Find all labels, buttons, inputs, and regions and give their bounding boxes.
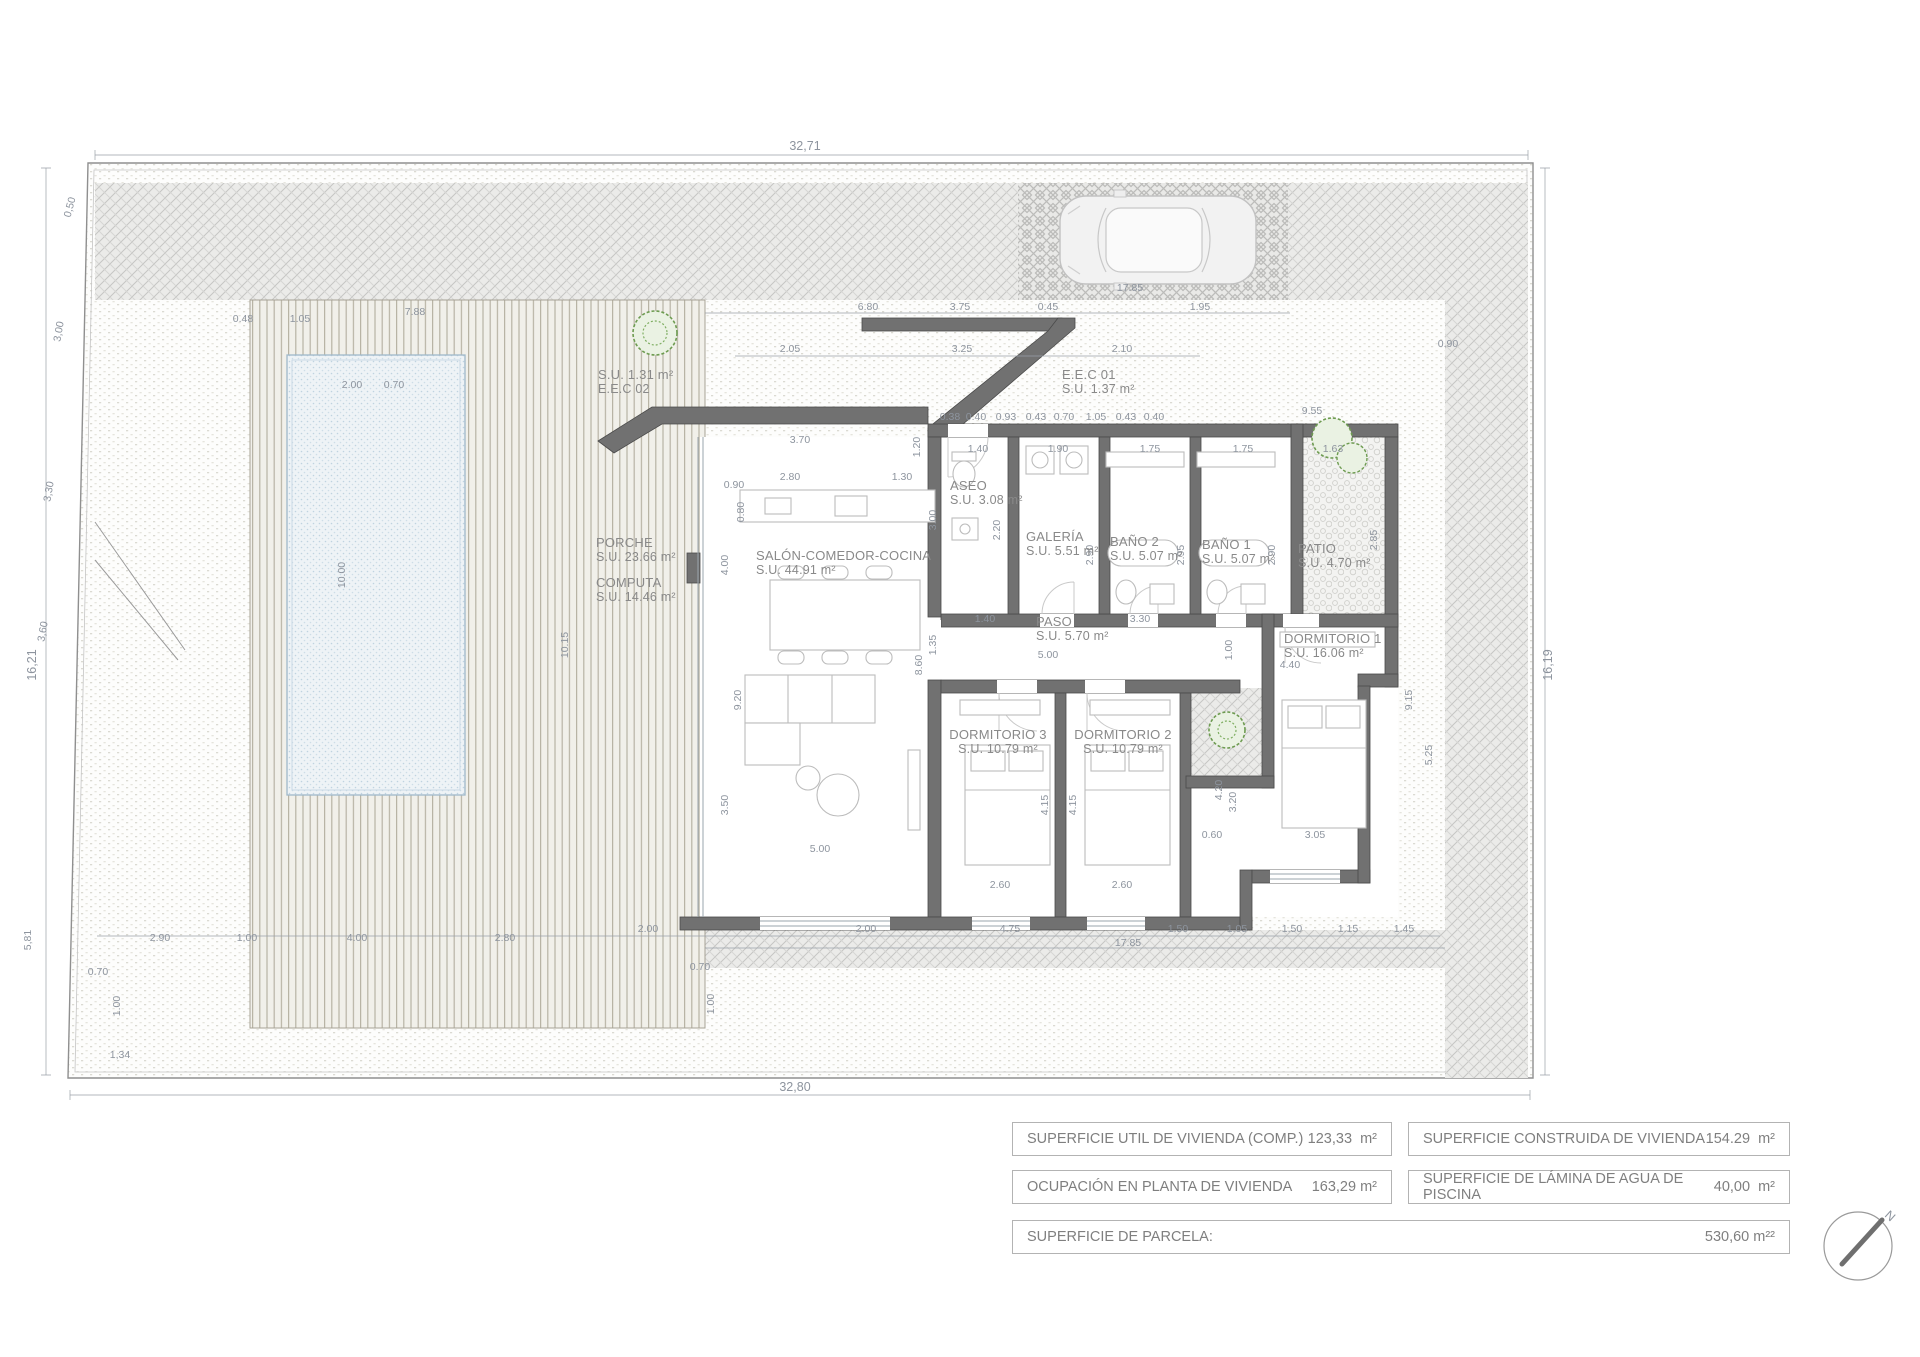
summary-row: SUPERFICIE CONSTRUIDA DE VIVIENDA 154.29… xyxy=(1408,1122,1790,1156)
room-area-label: S.U. 3.08 m² xyxy=(950,493,1023,507)
dimension-label: 5.00 xyxy=(1038,649,1059,661)
dimension-label: 4.00 xyxy=(347,932,368,944)
summary-row: SUPERFICIE DE PARCELA: 530,60 m²² xyxy=(1012,1220,1790,1254)
plan-sheet: 32,7132,8016,2116,190,503,003,303,605,81… xyxy=(0,0,1920,1357)
dimension-label: 10.15 xyxy=(559,632,571,658)
dimension-label: 2.00 xyxy=(856,923,877,935)
dimension-label: 5.25 xyxy=(1423,745,1435,766)
dimension-label: 0.70 xyxy=(1054,411,1075,423)
dimension-label: 3.70 xyxy=(790,434,811,446)
dimension-label: 0.43 xyxy=(1116,411,1137,423)
dimension-label: 0.70 xyxy=(690,961,711,973)
dimension-label: 0.90 xyxy=(1438,338,1459,350)
room-area-label: S.U. 4.70 m² xyxy=(1298,556,1371,570)
dimension-label: 5.00 xyxy=(810,843,831,855)
side-table xyxy=(796,766,820,790)
summary-value: 154.29 m² xyxy=(1706,1131,1775,1147)
room-area-label: S.U. 5.70 m² xyxy=(1036,629,1109,643)
dimension-label: 1.50 xyxy=(1168,923,1189,935)
dimension-label: 3.30 xyxy=(1130,613,1151,625)
dimension-label: 0.70 xyxy=(88,966,109,978)
dimension-label: 0.48 xyxy=(233,313,254,325)
dimension-label: 2.20 xyxy=(991,520,1003,541)
summary-label: SUPERFICIE DE LÁMINA DE AGUA DE PISCINA xyxy=(1423,1171,1714,1203)
dimension-label: 17.85 xyxy=(1115,937,1141,949)
room-area-label: S.U. 5.51 m² xyxy=(1026,544,1099,558)
dining-table xyxy=(770,566,920,664)
dimension-label: 0.40 xyxy=(1144,411,1165,423)
dimension-label: 16,19 xyxy=(1541,649,1555,680)
dimension-label: 9.55 xyxy=(1302,405,1323,417)
dimension-label: 3.00 xyxy=(927,510,939,531)
dimension-label: 1.00 xyxy=(1223,640,1235,661)
summary-value: 40,00 m² xyxy=(1714,1179,1775,1195)
dimension-label: 1.05 xyxy=(1086,411,1107,423)
dimension-label: 1.75 xyxy=(1233,443,1254,455)
dimension-label: 5,81 xyxy=(22,930,34,951)
dimension-label: 2.05 xyxy=(780,343,801,355)
car-icon xyxy=(1060,190,1256,290)
compass-icon: N xyxy=(1824,1208,1898,1280)
dimension-label: 1,34 xyxy=(110,1049,131,1061)
dimension-label: 2.10 xyxy=(1112,343,1133,355)
dimension-label: 0.38 xyxy=(940,411,961,423)
dimension-label: 1.50 xyxy=(1282,923,1303,935)
room-area-label: S.U. 44.91 m² xyxy=(756,563,836,577)
dimension-label: 6.80 xyxy=(858,301,879,313)
room-label: DORMITORIO 2 xyxy=(1074,727,1172,742)
summary-value: 530,60 m²² xyxy=(1705,1229,1775,1245)
dimension-label: 1.90 xyxy=(1048,443,1069,455)
wardrobe xyxy=(960,700,1040,715)
dimension-label: 4.40 xyxy=(1280,659,1301,671)
dimension-label: 4.20 xyxy=(1213,780,1225,801)
dimension-label: 4.00 xyxy=(719,555,731,576)
dimension-label: 1.20 xyxy=(911,437,923,458)
room-label: GALERÍA xyxy=(1026,529,1084,544)
dimension-label: 1.45 xyxy=(1394,923,1415,935)
summary-row: SUPERFICIE UTIL DE VIVIENDA (COMP.) 123,… xyxy=(1012,1122,1392,1156)
tree-icon xyxy=(633,311,677,355)
dimension-label: 2.60 xyxy=(1112,879,1133,891)
dimension-label: 4.15 xyxy=(1039,795,1051,816)
summary-row: OCUPACIÓN EN PLANTA DE VIVIENDA 163,29 m… xyxy=(1012,1170,1392,1204)
dimension-label: 2.00 xyxy=(638,923,659,935)
dimension-label: 0.45 xyxy=(1038,301,1059,313)
dimension-label: 3,60 xyxy=(35,620,50,642)
dimension-label: 1.30 xyxy=(892,471,913,483)
room-area-label: S.U. 5.07 m² xyxy=(1110,549,1183,563)
dimension-label: 32,80 xyxy=(779,1080,810,1094)
dimension-label: 2.85 xyxy=(1368,530,1380,551)
dimension-label: 1.05 xyxy=(290,313,311,325)
dimension-label: 0,50 xyxy=(62,196,79,219)
dimension-label: 0.40 xyxy=(966,411,987,423)
coffee-table xyxy=(817,774,859,816)
room-label: ASEO xyxy=(950,478,987,493)
tv-unit xyxy=(908,750,920,830)
dimension-label: 3.75 xyxy=(950,301,971,313)
dimension-label: 17.85 xyxy=(1117,282,1143,294)
dimension-label: 7.88 xyxy=(405,306,426,318)
room-area-label: E.E.C 02 xyxy=(598,382,650,396)
dimension-label: 2.80 xyxy=(780,471,801,483)
summary-value: 123,33 m² xyxy=(1308,1131,1377,1147)
room-area-label: S.U. 16.06 m² xyxy=(1284,646,1364,660)
dimension-label: 3.50 xyxy=(719,795,731,816)
dimension-label: 0.70 xyxy=(384,379,405,391)
room-label: BAÑO 2 xyxy=(1110,534,1159,549)
dimension-label: 0.80 xyxy=(735,502,747,523)
summary-label: SUPERFICIE UTIL DE VIVIENDA (COMP.) xyxy=(1027,1131,1303,1147)
room-area-label: S.U. 14.46 m² xyxy=(596,590,676,604)
dimension-label: 3.20 xyxy=(1227,792,1239,813)
pool xyxy=(287,355,465,795)
summary-label: OCUPACIÓN EN PLANTA DE VIVIENDA xyxy=(1027,1179,1292,1195)
dimension-label: 4.15 xyxy=(1067,795,1079,816)
dimension-label: 16,21 xyxy=(25,649,39,680)
dimension-label: 3.25 xyxy=(952,343,973,355)
compass-north-label: N xyxy=(1882,1208,1898,1224)
room-area-label: S.U. 23.66 m² xyxy=(596,550,676,564)
summary-row: SUPERFICIE DE LÁMINA DE AGUA DE PISCINA … xyxy=(1408,1170,1790,1204)
dimension-label: 0.60 xyxy=(1202,829,1223,841)
room-label: E.E.C 01 xyxy=(1062,367,1116,382)
dimension-label: 1.40 xyxy=(975,613,996,625)
dimension-label: 2.60 xyxy=(990,879,1011,891)
dimension-label: 2.90 xyxy=(150,932,171,944)
room-label: COMPUTA xyxy=(596,575,662,590)
room-label: PATIO xyxy=(1298,541,1336,556)
room-label: DORMITORIO 3 xyxy=(949,727,1047,742)
tree-icon xyxy=(1209,712,1245,748)
dimension-label: 10.00 xyxy=(336,562,348,588)
room-label: BAÑO 1 xyxy=(1202,537,1251,552)
dimension-label: 1.63 xyxy=(1323,443,1344,455)
dimension-label: 3,30 xyxy=(41,480,56,502)
dimension-label: 32,71 xyxy=(789,139,820,153)
dimension-label: 0.43 xyxy=(1026,411,1047,423)
dimension-label: 0.93 xyxy=(996,411,1017,423)
room-label: PASO xyxy=(1036,614,1072,629)
dimension-label: 1.40 xyxy=(968,443,989,455)
kitchen-island xyxy=(740,490,935,522)
wardrobe xyxy=(1090,700,1170,715)
canopy-wall xyxy=(862,318,1062,331)
room-label: SALÓN-COMEDOR-COCINA xyxy=(756,548,931,563)
dimension-label: 1.05 xyxy=(1227,923,1248,935)
dimension-label: 4.75 xyxy=(1000,923,1021,935)
dimension-label: 3,00 xyxy=(51,320,66,342)
dimension-label: 3.05 xyxy=(1305,829,1326,841)
room-label: DORMITORIO 1 xyxy=(1284,631,1382,646)
dimension-label: 2.00 xyxy=(342,379,363,391)
dimension-label: 1.00 xyxy=(705,994,717,1015)
dimension-label: 9.20 xyxy=(732,690,744,711)
room-label: S.U. 1.31 m² xyxy=(598,367,674,382)
dimension-label: 1.15 xyxy=(1338,923,1359,935)
dimension-label: 1.95 xyxy=(1190,301,1211,313)
room-area-label: S.U. 1.37 m² xyxy=(1062,382,1135,396)
summary-label: SUPERFICIE DE PARCELA: xyxy=(1027,1229,1213,1245)
room-area-label: S.U. 10.79 m² xyxy=(1083,742,1163,756)
room-area-label: S.U. 5.07 m² xyxy=(1202,552,1275,566)
dimension-label: 9.15 xyxy=(1403,690,1415,711)
room-area-label: S.U. 10.79 m² xyxy=(958,742,1038,756)
dimension-label: 2.80 xyxy=(495,932,516,944)
dimension-label: 1.00 xyxy=(237,932,258,944)
summary-label: SUPERFICIE CONSTRUIDA DE VIVIENDA xyxy=(1423,1131,1705,1147)
dimension-label: 0.90 xyxy=(724,479,745,491)
dimension-label: 1.00 xyxy=(111,996,123,1017)
dimension-label: 1.75 xyxy=(1140,443,1161,455)
summary-value: 163,29 m² xyxy=(1312,1179,1377,1195)
dimension-label: 8.60 xyxy=(913,655,925,676)
room-label: PORCHE xyxy=(596,535,653,550)
dimension-label: 1.35 xyxy=(927,635,939,656)
